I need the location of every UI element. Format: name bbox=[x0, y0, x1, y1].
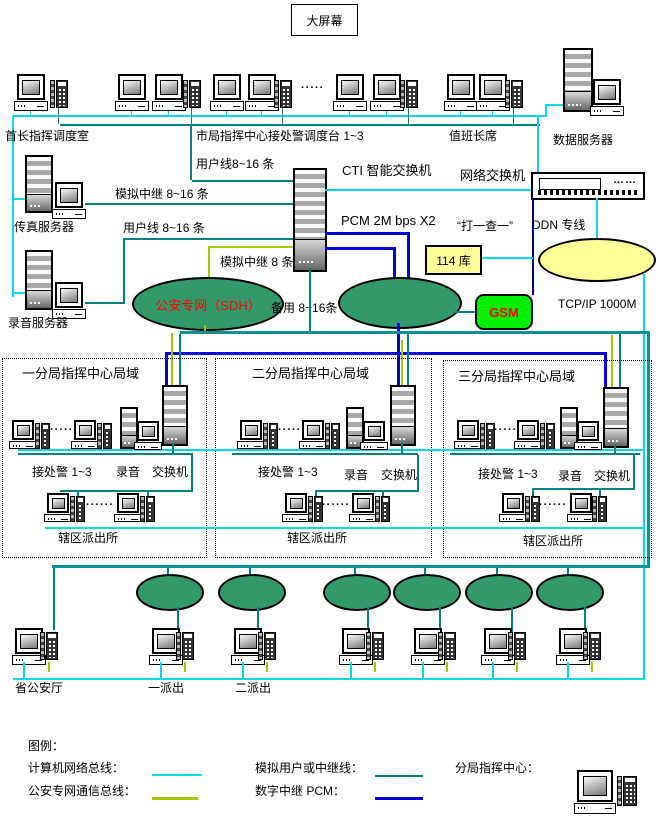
phone-icon bbox=[140, 496, 155, 522]
sdh-label: 公安专网（SDH） bbox=[155, 295, 260, 314]
cti-downlink bbox=[309, 268, 311, 332]
ellipsis-dots: ······ bbox=[322, 499, 350, 511]
legend-branch-center-label: 分局指挥中心： bbox=[455, 762, 539, 775]
analog-frame-top bbox=[180, 331, 650, 334]
phone-cloud bbox=[393, 574, 461, 611]
userline2-label: 用户线 8~16 条 bbox=[123, 222, 205, 235]
tcpip-label: TCP/IP 1000M bbox=[558, 298, 636, 311]
userline1-label: 用户线8~16 条 bbox=[196, 158, 274, 171]
ellipsis-dots: ······ bbox=[86, 499, 114, 511]
legend-sdh-bus-swatch bbox=[152, 797, 198, 800]
legend-computer-bus-label: 计算机网络总线： bbox=[28, 762, 124, 775]
station-pc bbox=[500, 493, 526, 522]
record-server-console bbox=[53, 282, 85, 319]
stub bbox=[48, 662, 50, 672]
branch3-station-h bbox=[532, 488, 635, 490]
drop bbox=[567, 662, 569, 678]
pcm-line2-v bbox=[393, 247, 396, 279]
data-server-label: 数据服务器 bbox=[553, 134, 613, 147]
phone-cloud bbox=[218, 574, 286, 611]
backup-label: 备用 8~16条 bbox=[271, 302, 337, 315]
pcm-line1-h bbox=[325, 232, 410, 235]
ellipsis-dots: ····· bbox=[301, 82, 324, 94]
workstation bbox=[116, 74, 148, 111]
phone-icon bbox=[366, 632, 384, 660]
phone-icon bbox=[438, 632, 456, 660]
phone-icon bbox=[325, 423, 340, 449]
stub bbox=[516, 662, 518, 672]
drop bbox=[160, 662, 162, 678]
phone-icon bbox=[525, 496, 540, 522]
legend-sdh-bus-label: 公安专网通信总线： bbox=[28, 785, 136, 798]
switch-ports bbox=[538, 190, 638, 195]
branch1-station-h bbox=[60, 490, 193, 492]
dialquery-label: “打一查一” bbox=[457, 220, 513, 233]
cti-label: CTI 智能交换机 bbox=[342, 164, 432, 177]
phone-icon bbox=[176, 632, 194, 660]
drop bbox=[191, 107, 192, 124]
db114-link bbox=[478, 257, 533, 259]
phone-icon bbox=[540, 423, 555, 449]
phone-icon bbox=[274, 80, 292, 108]
station-pc bbox=[283, 493, 309, 522]
branch1-record-console bbox=[135, 421, 161, 450]
branch3-record-console bbox=[575, 421, 601, 450]
stub bbox=[446, 662, 448, 672]
workstation bbox=[211, 74, 243, 111]
analog8-v bbox=[208, 246, 210, 278]
drop bbox=[408, 107, 409, 124]
workstation bbox=[334, 74, 366, 111]
phone-icon bbox=[583, 632, 601, 660]
drop bbox=[513, 107, 514, 124]
computer-bus-top bbox=[12, 115, 545, 117]
provincial-uplink bbox=[53, 568, 55, 630]
fax-server-tower bbox=[25, 155, 53, 213]
drop bbox=[23, 662, 25, 678]
dispatch2-label: 二派出 bbox=[235, 682, 271, 695]
analog-trunk-label: 模拟中继 8~16 条 bbox=[115, 188, 209, 201]
drop bbox=[350, 662, 352, 678]
drop bbox=[492, 662, 494, 678]
ellipsis-dots: ····· bbox=[278, 424, 301, 436]
drop bbox=[282, 107, 283, 124]
bottom-lan-bus bbox=[13, 678, 645, 680]
analog-frame-bottom bbox=[52, 565, 650, 568]
lan-bus-branches bbox=[18, 449, 643, 451]
phone-icon bbox=[183, 80, 201, 108]
workstation bbox=[153, 74, 185, 111]
gsm-link bbox=[455, 311, 475, 313]
stub bbox=[266, 662, 268, 672]
phone-cloud bbox=[323, 574, 391, 611]
phone-icon bbox=[592, 496, 607, 522]
workstation bbox=[10, 420, 36, 449]
userline1-line bbox=[192, 180, 293, 182]
stub bbox=[12, 292, 25, 294]
stub bbox=[12, 198, 25, 200]
branch2-switch-tower bbox=[390, 385, 416, 446]
cti-netswitch-link bbox=[325, 189, 531, 191]
analog8-line bbox=[208, 246, 293, 248]
branch1-switch-tower bbox=[162, 385, 188, 446]
ellipsis-dots: ····· bbox=[494, 424, 517, 436]
workstation bbox=[515, 420, 541, 449]
legend-branch-center-phone bbox=[617, 776, 637, 806]
workstation bbox=[371, 74, 403, 111]
phone-icon bbox=[375, 496, 390, 522]
ellipsis-dots: ······ bbox=[539, 499, 567, 511]
cti-switch-tower bbox=[293, 168, 327, 272]
phone-icon bbox=[263, 423, 278, 449]
trunk-cloud bbox=[338, 277, 462, 329]
branch2-station-h bbox=[315, 490, 419, 492]
phone-icon bbox=[35, 423, 50, 449]
gsm-box: GSM bbox=[475, 294, 533, 330]
branch3-station-v bbox=[633, 455, 635, 488]
data-server-console bbox=[591, 79, 623, 116]
duty-chief-label: 值班长席 bbox=[449, 130, 497, 143]
ellipsis-dots: ····· bbox=[50, 424, 73, 436]
switch-ddn-link bbox=[596, 198, 598, 238]
netswitch-label: 网络交换机 bbox=[460, 169, 525, 182]
ddn-label: DDN 专线 bbox=[532, 219, 585, 232]
branch1-title: 一分局指挥中心局域 bbox=[22, 367, 139, 380]
legend-branch-center-pc bbox=[575, 770, 615, 814]
branch2-title: 二分局指挥中心局域 bbox=[252, 367, 369, 380]
phone-cloud bbox=[136, 574, 204, 611]
drop bbox=[614, 445, 616, 453]
navy-vertical bbox=[532, 198, 534, 295]
record-server-label: 录音服务器 bbox=[8, 317, 68, 330]
chief-room-label: 首长指挥调度室 bbox=[5, 130, 89, 143]
branch1-bus bbox=[18, 453, 193, 455]
pcm-label: PCM 2M bps X2 bbox=[341, 214, 436, 227]
switch-slot bbox=[539, 178, 601, 190]
phone-icon bbox=[480, 423, 495, 449]
phone-icon bbox=[97, 423, 112, 449]
fax-server-console bbox=[53, 182, 85, 219]
branch3-bus bbox=[450, 453, 640, 455]
workstation bbox=[15, 74, 47, 111]
phone-icon bbox=[258, 632, 276, 660]
phone-icon bbox=[308, 496, 323, 522]
branch2-switch-label: 交换机 bbox=[381, 469, 417, 482]
city-center-label: 市局指挥中心接处警调度台 1~3 bbox=[196, 130, 364, 143]
big-screen-label: 大屏幕 bbox=[306, 12, 342, 29]
branch3-record-label: 录音 bbox=[558, 470, 582, 483]
legend-pcm-label: 数字中继 PCM： bbox=[255, 785, 345, 798]
phone-cloud bbox=[536, 574, 604, 611]
branch2-record-console bbox=[361, 421, 387, 450]
workstation bbox=[300, 420, 326, 449]
drop bbox=[58, 107, 59, 124]
switch-dots: …… bbox=[613, 174, 637, 186]
userline2-h2 bbox=[85, 302, 125, 304]
station-pc bbox=[350, 493, 376, 522]
branch3-switch-tower bbox=[603, 387, 629, 448]
branch3-police-label: 接处警 1~3 bbox=[478, 468, 538, 481]
branch1-switch-label: 交换机 bbox=[152, 466, 188, 479]
phone-icon bbox=[505, 80, 523, 108]
analog8-label: 模拟中继 8 条 bbox=[220, 256, 293, 269]
db114-box: 114 库 bbox=[425, 245, 482, 275]
workstation bbox=[445, 74, 477, 111]
branch1-station-label: 辖区派出所 bbox=[58, 532, 118, 545]
data-server-tower bbox=[563, 48, 593, 112]
dispatch1-label: 一派出 bbox=[148, 682, 184, 695]
station-pc bbox=[45, 493, 71, 522]
lan-bus-stations bbox=[45, 527, 643, 529]
sdh-cloud: 公安专网（SDH） bbox=[132, 277, 284, 331]
gsm-label: GSM bbox=[489, 305, 519, 320]
branch2-record-label: 录音 bbox=[344, 469, 368, 482]
phone-cloud bbox=[465, 574, 533, 611]
pcm-line2-h bbox=[325, 247, 396, 250]
analog-bus-top bbox=[60, 124, 540, 126]
big-screen-box: 大屏幕 bbox=[291, 4, 358, 36]
branch1-station-v bbox=[191, 455, 193, 490]
workstation bbox=[238, 420, 264, 449]
stub bbox=[374, 662, 376, 672]
userline2-v bbox=[123, 238, 125, 304]
legend-analog-label: 模拟用户或中继线： bbox=[255, 762, 363, 775]
branch2-station-label: 辖区派出所 bbox=[287, 532, 347, 545]
userline2-line bbox=[123, 238, 293, 240]
dataserver-link-h bbox=[545, 104, 563, 106]
cloud-pcm-down bbox=[397, 323, 400, 354]
drop bbox=[172, 443, 174, 453]
drop bbox=[242, 662, 244, 678]
branch3-switch-label: 交换机 bbox=[594, 470, 630, 483]
drop bbox=[422, 662, 424, 678]
record-server-tower bbox=[25, 250, 53, 310]
bus-to-netswitch-vertical bbox=[537, 115, 539, 172]
workstation bbox=[72, 420, 98, 449]
branch3-title: 三分局指挥中心局域 bbox=[458, 370, 575, 383]
station-pc bbox=[568, 493, 594, 522]
phone-icon bbox=[400, 80, 418, 108]
legend-computer-bus-swatch bbox=[152, 774, 202, 776]
network-switch: …… bbox=[531, 172, 645, 200]
station-pc bbox=[115, 493, 141, 522]
pcm-line1-v bbox=[407, 232, 410, 279]
phone-icon bbox=[40, 632, 58, 660]
branch2-police-label: 接处警 1~3 bbox=[258, 466, 318, 479]
workstation bbox=[455, 420, 481, 449]
pcm-bus bbox=[165, 352, 607, 355]
legend-analog-swatch bbox=[375, 775, 423, 777]
fax-server-label: 传真服务器 bbox=[14, 221, 74, 234]
drop bbox=[401, 443, 403, 453]
branch2-bus bbox=[232, 453, 418, 455]
stub bbox=[591, 662, 593, 672]
phone-icon bbox=[50, 80, 68, 108]
legend-pcm-swatch bbox=[375, 797, 423, 800]
analog-trunk-line bbox=[85, 203, 293, 205]
branch1-record-label: 录音 bbox=[116, 466, 140, 479]
ddn-cloud bbox=[538, 238, 656, 282]
phone-icon bbox=[70, 496, 85, 522]
db114-label: 114 库 bbox=[436, 252, 470, 269]
phone-icon bbox=[508, 632, 526, 660]
branch1-police-label: 接处警 1~3 bbox=[32, 466, 92, 479]
legend-title: 图例： bbox=[28, 740, 64, 753]
branch3-station-label: 辖区派出所 bbox=[523, 535, 583, 548]
network-topology-diagram: 大屏幕 ····· 首长指挥调度室 市局指挥中心接处警调度台 1~3 值班长席 … bbox=[0, 0, 659, 835]
stub bbox=[184, 662, 186, 672]
branch2-station-v bbox=[417, 455, 419, 490]
userline-vertical bbox=[190, 124, 192, 180]
provincial-label: 省公安厅 bbox=[15, 682, 63, 695]
